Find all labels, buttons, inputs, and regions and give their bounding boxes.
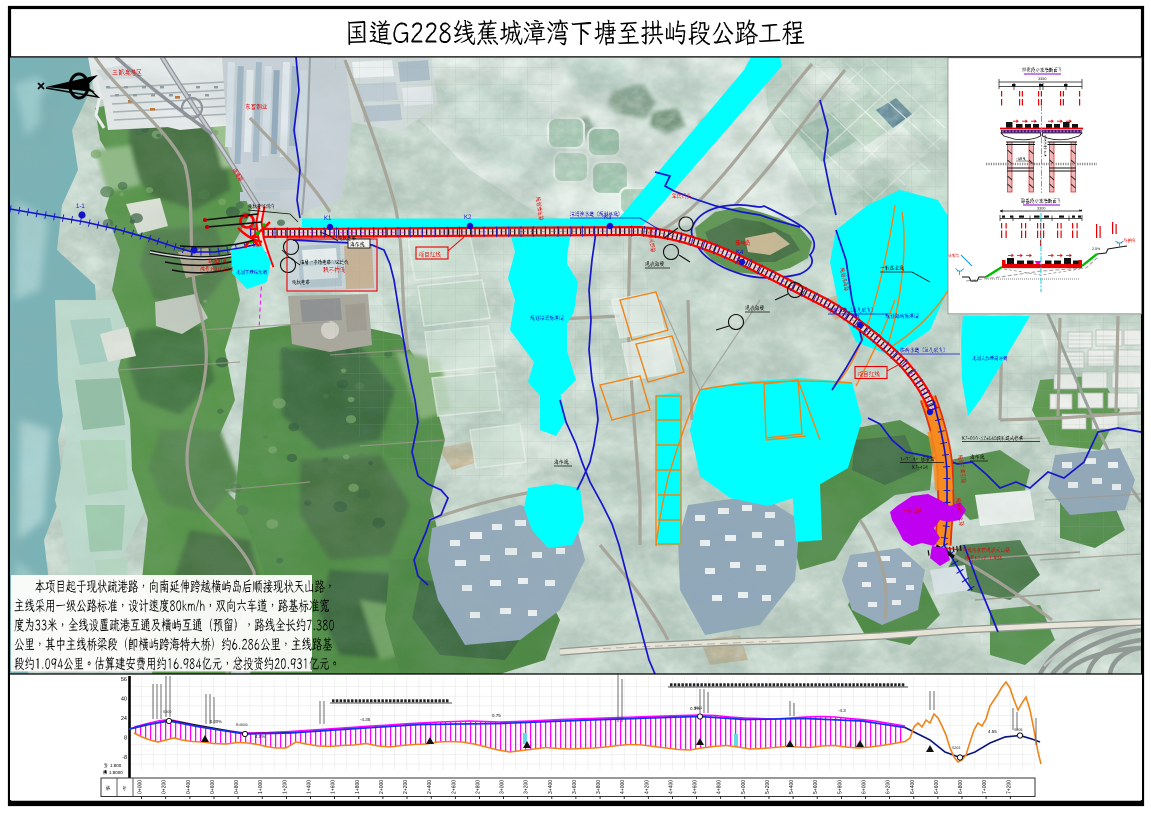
svg-text:K4: K4 <box>736 250 744 256</box>
svg-text:0.3%: 0.3% <box>690 706 700 711</box>
svg-text:4+800: 4+800 <box>717 780 723 794</box>
svg-text:6+600: 6+600 <box>934 780 940 794</box>
svg-text:2.5%: 2.5% <box>1092 247 1101 251</box>
svg-text:4+200: 4+200 <box>644 780 650 794</box>
svg-text:56: 56 <box>121 677 127 683</box>
svg-text:K5: K5 <box>852 314 860 320</box>
svg-text:2+600: 2+600 <box>451 780 457 794</box>
svg-text:1+200: 1+200 <box>282 780 288 794</box>
svg-text:-8: -8 <box>122 755 127 761</box>
svg-text:4.5%: 4.5% <box>255 734 265 739</box>
svg-text:1+400: 1+400 <box>307 780 313 794</box>
svg-text:3+600: 3+600 <box>572 780 578 794</box>
svg-text:5.00%: 5.00% <box>210 719 222 724</box>
svg-text:8: 8 <box>124 736 127 742</box>
svg-text:1-1: 1-1 <box>76 204 85 210</box>
svg-text:-4.35: -4.35 <box>360 717 371 722</box>
svg-text:2+400: 2+400 <box>427 780 433 794</box>
svg-text:6+400: 6+400 <box>910 780 916 794</box>
svg-text:5+800: 5+800 <box>837 780 843 794</box>
svg-text:1:800: 1:800 <box>110 763 122 768</box>
svg-text:1+600: 1+600 <box>331 780 337 794</box>
svg-text:2+000: 2+000 <box>379 780 385 794</box>
svg-text:5+400: 5+400 <box>789 780 795 794</box>
svg-text:0+000: 0+000 <box>138 780 144 794</box>
svg-text:6+800: 6+800 <box>958 780 964 794</box>
svg-text:3+000: 3+000 <box>500 780 506 794</box>
svg-text:0+800: 0+800 <box>234 780 240 794</box>
svg-text:24: 24 <box>121 716 127 722</box>
svg-text:K2: K2 <box>464 215 472 221</box>
svg-text:4+600: 4+600 <box>693 780 699 794</box>
svg-text:R=5000: R=5000 <box>236 723 248 727</box>
svg-text:4+400: 4+400 <box>669 780 675 794</box>
svg-text:0.75: 0.75 <box>492 713 501 718</box>
svg-text:3+200: 3+200 <box>524 780 530 794</box>
svg-text:40: 40 <box>121 697 127 703</box>
svg-text:6+000: 6+000 <box>862 780 868 794</box>
svg-text:2+200: 2+200 <box>403 780 409 794</box>
svg-text:0+200: 0+200 <box>162 780 168 794</box>
svg-text:7+000: 7+000 <box>982 780 988 794</box>
svg-text:2+800: 2+800 <box>475 780 481 794</box>
svg-text:3300: 3300 <box>1037 207 1045 211</box>
svg-text:1+800: 1+800 <box>355 780 361 794</box>
svg-text:0+600: 0+600 <box>210 780 216 794</box>
svg-text:S203: S203 <box>952 746 960 750</box>
svg-text:5+000: 5+000 <box>741 780 747 794</box>
svg-text:4+000: 4+000 <box>620 780 626 794</box>
svg-text:7+200: 7+200 <box>1006 780 1012 794</box>
svg-text:5+200: 5+200 <box>765 780 771 794</box>
svg-text:4.55: 4.55 <box>988 729 997 734</box>
svg-text:1+000: 1+000 <box>258 780 264 794</box>
svg-text:3+400: 3+400 <box>548 780 554 794</box>
svg-text:5+600: 5+600 <box>813 780 819 794</box>
svg-text:0+400: 0+400 <box>186 780 192 794</box>
svg-text:3350: 3350 <box>1038 77 1046 81</box>
svg-text:1:8000: 1:8000 <box>109 770 123 775</box>
svg-text:6+200: 6+200 <box>886 780 892 794</box>
svg-text:S205: S205 <box>1014 728 1022 732</box>
svg-text:K1: K1 <box>324 216 332 222</box>
svg-text:-4.3: -4.3 <box>838 708 846 713</box>
svg-text:3+800: 3+800 <box>596 780 602 794</box>
